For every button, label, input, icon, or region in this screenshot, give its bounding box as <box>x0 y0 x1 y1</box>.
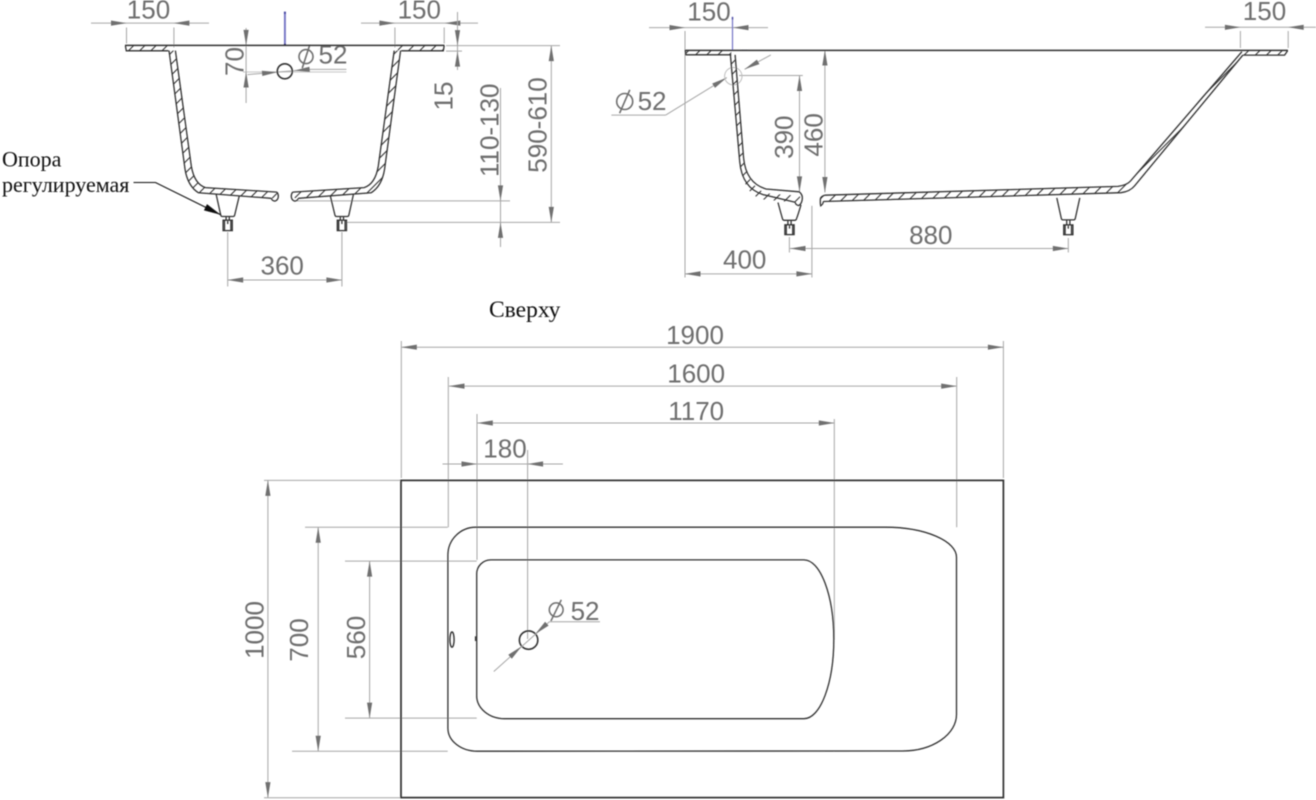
svg-text:390: 390 <box>769 116 799 159</box>
svg-text:52: 52 <box>571 596 600 626</box>
svg-text:150: 150 <box>398 0 441 25</box>
svg-text:1600: 1600 <box>667 359 725 389</box>
svg-text:52: 52 <box>319 39 348 69</box>
svg-text:1170: 1170 <box>668 396 724 426</box>
svg-text:150: 150 <box>127 0 170 25</box>
svg-text:150: 150 <box>1243 0 1286 26</box>
svg-text:15: 15 <box>429 82 459 111</box>
svg-text:1900: 1900 <box>666 320 724 350</box>
svg-text:880: 880 <box>909 220 952 250</box>
svg-text:590-610: 590-610 <box>523 77 553 172</box>
svg-text:700: 700 <box>284 618 314 661</box>
svg-text:Опора: Опора <box>2 147 62 172</box>
svg-text:70: 70 <box>220 47 250 76</box>
svg-text:1000: 1000 <box>240 601 270 659</box>
svg-text:180: 180 <box>483 434 526 464</box>
svg-text:регулируемая: регулируемая <box>2 172 129 197</box>
svg-text:400: 400 <box>723 244 766 274</box>
svg-text:52: 52 <box>638 86 667 116</box>
svg-text:360: 360 <box>261 251 304 281</box>
svg-text:560: 560 <box>341 616 371 659</box>
svg-text:110-130: 110-130 <box>475 84 505 178</box>
svg-text:460: 460 <box>798 113 828 156</box>
svg-text:150: 150 <box>687 0 730 27</box>
svg-text:Сверху: Сверху <box>489 297 561 323</box>
